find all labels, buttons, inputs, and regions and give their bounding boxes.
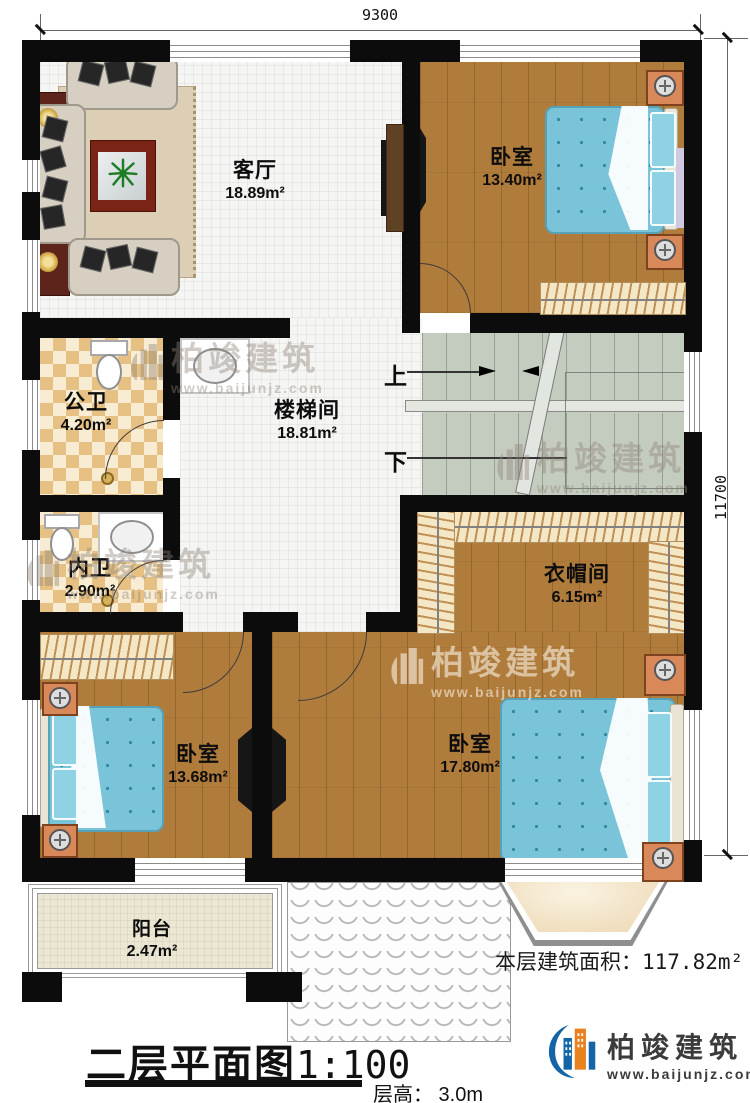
window <box>170 40 350 62</box>
floor-plan-canvas: 上 下 客厅 18.89m² 卧室 13.40m² 公卫 4.20m² 楼梯间 … <box>0 0 750 1103</box>
stairs-up-label: 上 <box>384 357 407 391</box>
room-name: 衣帽间 <box>517 562 637 588</box>
wall-segment <box>417 495 684 512</box>
leader-line <box>407 371 479 373</box>
dimension-height: 11700 <box>712 475 730 520</box>
room-name: 卧室 <box>452 145 572 171</box>
floor-area-label: 本层建筑面积： <box>495 951 642 974</box>
room-label-stair-hall: 楼梯间 18.81m² <box>247 398 367 444</box>
tv-cabinet <box>386 124 404 232</box>
room-label-inner-bath: 内卫 2.90m² <box>40 556 140 602</box>
pillow <box>650 170 676 226</box>
curtain <box>676 148 684 228</box>
room-label-living: 客厅 18.89m² <box>195 158 315 204</box>
wall-segment <box>402 40 420 313</box>
room-area: 2.47m² <box>92 942 212 962</box>
lamp-icon <box>38 252 58 272</box>
room-name: 公卫 <box>36 390 136 416</box>
room-area: 18.89m² <box>195 184 315 204</box>
room-area: 18.81m² <box>247 424 367 444</box>
roof-tiles <box>287 882 511 1042</box>
balcony-sliding-door <box>135 858 245 882</box>
sink-basin <box>110 520 154 554</box>
window <box>22 540 40 600</box>
brand-logo: 柏竣建筑 www.baijunjz.com <box>543 1020 750 1087</box>
sink-basin <box>193 348 237 384</box>
stair-landing-outline <box>565 372 692 489</box>
room-label-bedroom-left: 卧室 13.68m² <box>138 742 258 788</box>
wall-segment <box>272 612 298 632</box>
window <box>684 352 702 432</box>
window <box>460 40 640 62</box>
sofa-cushion <box>40 204 65 229</box>
nightstand <box>42 682 78 716</box>
wall-segment <box>163 318 180 420</box>
room-area: 13.68m² <box>138 768 258 788</box>
wall-segment <box>22 318 290 338</box>
room-label-cloakroom: 衣帽间 6.15m² <box>517 562 637 608</box>
wall-segment <box>366 612 402 632</box>
tv <box>420 128 426 212</box>
wall-segment <box>243 612 252 632</box>
room-name: 卧室 <box>138 742 258 768</box>
balcony-pier <box>22 972 62 1002</box>
logo-brand: 柏竣建筑 <box>607 1026 743 1066</box>
closet-left <box>417 507 455 634</box>
pillow <box>52 714 78 766</box>
wardrobe <box>540 282 686 315</box>
title-underline <box>85 1080 362 1087</box>
closet-top <box>417 507 686 543</box>
room-name: 卧室 <box>410 732 530 758</box>
room-name: 客厅 <box>195 158 315 184</box>
room-area: 17.80m² <box>410 758 530 778</box>
wall-segment <box>163 478 180 560</box>
window <box>22 240 40 312</box>
wall-segment <box>402 313 420 333</box>
tv <box>272 728 286 812</box>
pillow <box>646 712 672 778</box>
wall-segment <box>252 612 272 858</box>
nightstand <box>42 824 78 858</box>
room-label-public-bath: 公卫 4.20m² <box>36 390 136 436</box>
wall-segment <box>22 495 163 512</box>
window <box>22 160 40 192</box>
bay-window-opening <box>505 858 655 882</box>
floor-height-note: 层高： 3.0m <box>373 1078 483 1103</box>
nightstand <box>642 842 684 882</box>
direction-arrow-icon <box>522 366 539 376</box>
floor-area-note: 本层建筑面积：117.82m² <box>495 946 743 976</box>
room-label-bedroom-top: 卧室 13.40m² <box>452 145 572 191</box>
dimension-width: 9300 <box>345 6 415 24</box>
plant-icon <box>104 154 142 192</box>
wall-segment <box>470 313 684 333</box>
leader-line <box>407 457 567 459</box>
window <box>22 700 40 815</box>
pillow <box>650 112 676 168</box>
room-name: 阳台 <box>92 918 212 942</box>
sofa-cushion <box>106 244 132 270</box>
dimension-line <box>40 30 700 31</box>
floor-area-value: 117.82m² <box>642 950 743 974</box>
wardrobe <box>40 634 174 680</box>
wall-segment <box>400 495 417 632</box>
logo-site: www.baijunjz.com <box>607 1066 750 1082</box>
dimension-line <box>727 38 728 855</box>
wall-segment <box>22 612 183 632</box>
toilet-bowl <box>96 354 122 390</box>
room-label-bedroom-right: 卧室 17.80m² <box>410 732 530 778</box>
room-area: 13.40m² <box>452 171 572 191</box>
room-area: 2.90m² <box>40 582 140 602</box>
room-label-balcony: 阳台 2.47m² <box>92 918 212 962</box>
wall-segment <box>22 40 170 62</box>
balcony-pier <box>246 972 302 1002</box>
direction-arrow-icon <box>479 366 496 376</box>
room-area: 6.15m² <box>517 588 637 608</box>
pillow <box>52 768 78 820</box>
pillow <box>646 780 672 846</box>
nightstand <box>646 70 684 106</box>
headboard <box>670 704 684 856</box>
room-area: 4.20m² <box>36 416 136 436</box>
nightstand <box>644 654 686 696</box>
room-name: 内卫 <box>40 556 140 582</box>
nightstand <box>646 234 684 270</box>
room-name: 楼梯间 <box>247 398 367 424</box>
logo-icon <box>543 1020 599 1087</box>
stairs-down-label: 下 <box>384 443 407 477</box>
closet-right <box>648 541 686 634</box>
window <box>684 710 702 840</box>
dimension-extension <box>700 14 701 40</box>
